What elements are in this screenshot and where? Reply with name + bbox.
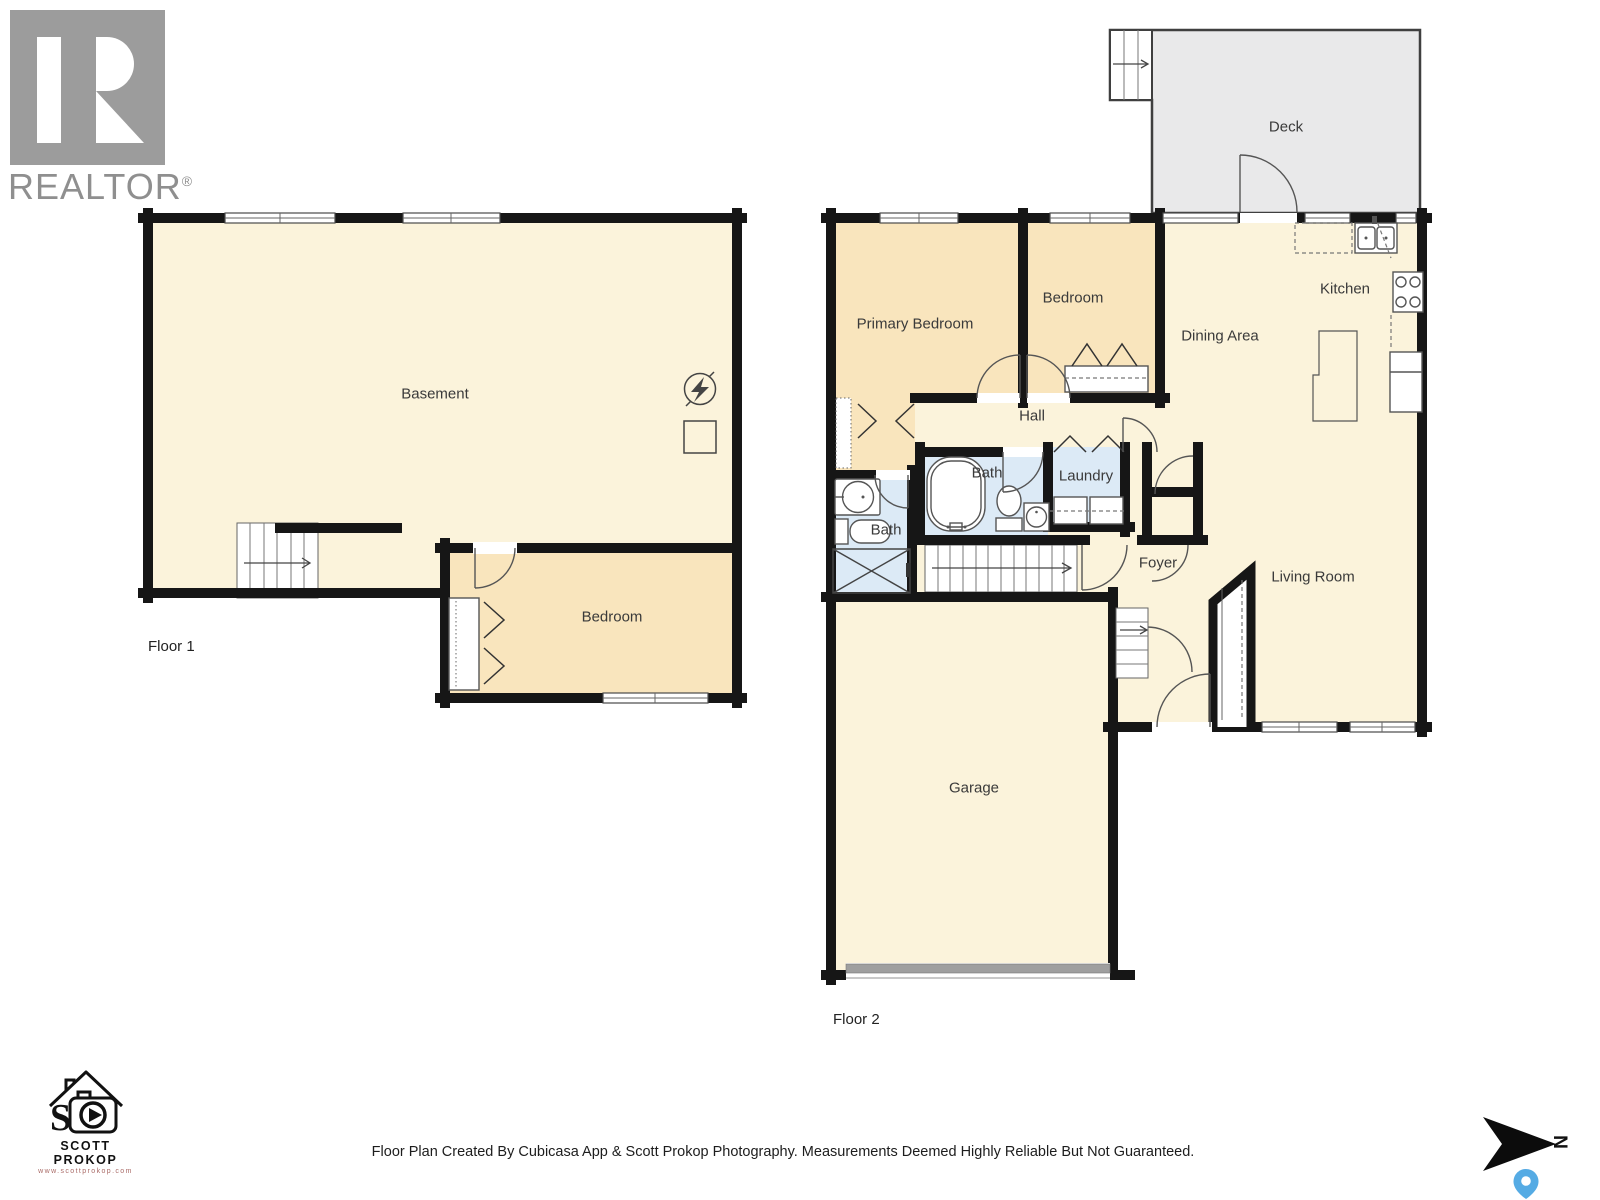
realtor-r-icon (10, 10, 165, 165)
window (603, 693, 708, 703)
room-label-kitchen: Kitchen (1320, 281, 1370, 298)
room-label-bath-small: Bath (871, 522, 902, 539)
disclaimer-text: Floor Plan Created By Cubicasa App & Sco… (372, 1144, 1195, 1160)
window (403, 213, 500, 223)
window (225, 213, 335, 223)
garage-door (846, 963, 1110, 987)
svg-text:S: S (50, 1097, 71, 1139)
photographer-logo: S SCOTT PROKOP www.scottprokop.com (28, 1056, 143, 1175)
realtor-logo (10, 10, 165, 165)
fridge-icon (1390, 352, 1422, 412)
window (880, 213, 958, 223)
window (1350, 722, 1415, 732)
window (1305, 213, 1350, 223)
camera-house-icon: S (36, 1056, 136, 1138)
room-label-primary-bedroom: Primary Bedroom (857, 316, 974, 333)
floor2-plan (808, 20, 1458, 1025)
photographer-name: SCOTT PROKOP (28, 1139, 143, 1167)
north-label: N (1548, 1135, 1570, 1149)
floor1-plan (120, 195, 760, 720)
deck-area (1110, 30, 1420, 213)
kitchen-island (1313, 331, 1357, 421)
coat-closet-walls (1213, 570, 1251, 727)
toilet-icon (996, 486, 1022, 531)
registered-mark: ® (182, 173, 193, 189)
room-label-dining-area: Dining Area (1181, 328, 1259, 345)
window (1050, 213, 1130, 223)
location-pin-icon (1512, 1168, 1540, 1200)
window (1396, 213, 1416, 223)
room-label-hall: Hall (1019, 408, 1045, 425)
stairs-down (1116, 608, 1148, 678)
deck-staircase (1110, 30, 1152, 100)
room-label-bedroom-f2: Bedroom (1043, 290, 1104, 307)
floor1-label: Floor 1 (148, 638, 195, 655)
room-label-bath-mid: Bath (972, 465, 1003, 482)
sink-icon (835, 479, 880, 515)
room-label-laundry: Laundry (1059, 468, 1113, 485)
room-label-living-room: Living Room (1271, 569, 1354, 586)
stove-icon (1393, 272, 1423, 312)
photographer-url: www.scottprokop.com (28, 1168, 143, 1175)
room-label-garage: Garage (949, 780, 999, 797)
room-label-deck: Deck (1269, 119, 1303, 136)
window (1262, 722, 1337, 732)
floor1-staircase (237, 523, 318, 598)
window (1163, 213, 1238, 223)
floor2-main-staircase (925, 545, 1077, 592)
sink-icon (1024, 503, 1049, 531)
room-label-foyer: Foyer (1139, 555, 1177, 572)
room-label-bedroom-f1: Bedroom (582, 609, 643, 626)
room-label-basement: Basement (401, 386, 469, 403)
bedroom-door-gap (473, 542, 517, 554)
floor2-label: Floor 2 (833, 1011, 880, 1028)
